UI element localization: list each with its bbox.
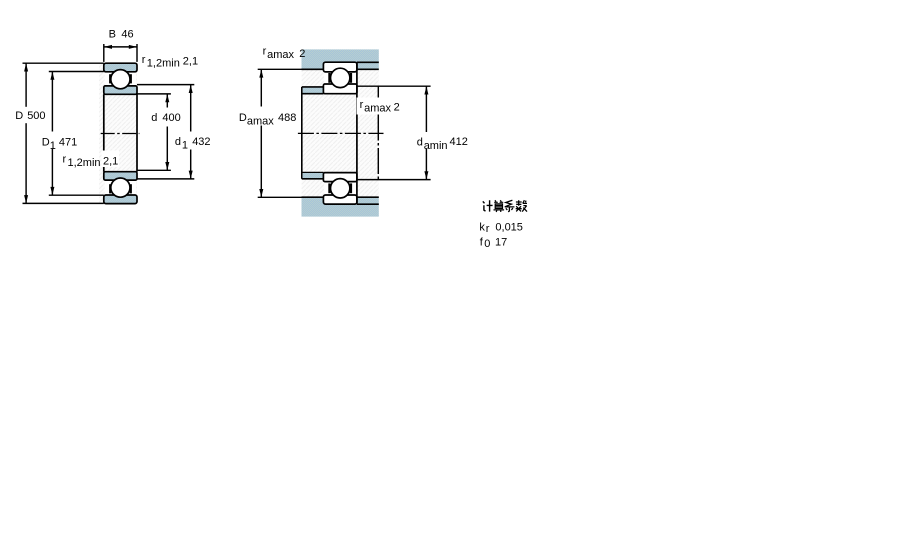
svg-text:D: D xyxy=(239,112,247,124)
svg-text:1,2min: 1,2min xyxy=(147,57,180,69)
svg-text:500: 500 xyxy=(27,110,45,122)
svg-text:d: d xyxy=(151,112,157,124)
svg-text:r: r xyxy=(142,54,146,66)
svg-text:0: 0 xyxy=(484,238,490,250)
svg-text:amax: amax xyxy=(247,116,274,128)
svg-text:r: r xyxy=(263,46,267,58)
svg-text:400: 400 xyxy=(162,112,180,124)
svg-text:amax: amax xyxy=(364,103,391,115)
svg-text:1: 1 xyxy=(182,140,188,152)
svg-text:2: 2 xyxy=(394,101,400,113)
svg-text:D: D xyxy=(42,136,50,148)
svg-text:1: 1 xyxy=(50,140,56,152)
svg-text:46: 46 xyxy=(121,29,133,41)
svg-text:amin: amin xyxy=(424,140,448,152)
svg-text:k: k xyxy=(479,221,485,233)
svg-text:2: 2 xyxy=(299,48,305,60)
svg-text:412: 412 xyxy=(450,136,468,148)
svg-text:2,1: 2,1 xyxy=(183,56,198,68)
svg-text:amax: amax xyxy=(267,49,294,61)
svg-text:d: d xyxy=(175,136,181,148)
svg-text:471: 471 xyxy=(59,136,77,148)
svg-text:r: r xyxy=(360,99,364,111)
svg-text:d: d xyxy=(417,137,423,149)
svg-text:2,1: 2,1 xyxy=(103,156,118,168)
svg-text:r: r xyxy=(486,223,490,235)
svg-text:B: B xyxy=(109,29,116,41)
svg-text:17: 17 xyxy=(495,236,507,248)
svg-text:432: 432 xyxy=(192,136,210,148)
svg-text:D: D xyxy=(15,110,23,122)
svg-text:0,015: 0,015 xyxy=(495,221,523,233)
svg-text:r: r xyxy=(63,153,67,165)
svg-text:488: 488 xyxy=(278,112,296,124)
svg-text:f: f xyxy=(480,236,484,248)
svg-text:1,2min: 1,2min xyxy=(68,157,101,169)
